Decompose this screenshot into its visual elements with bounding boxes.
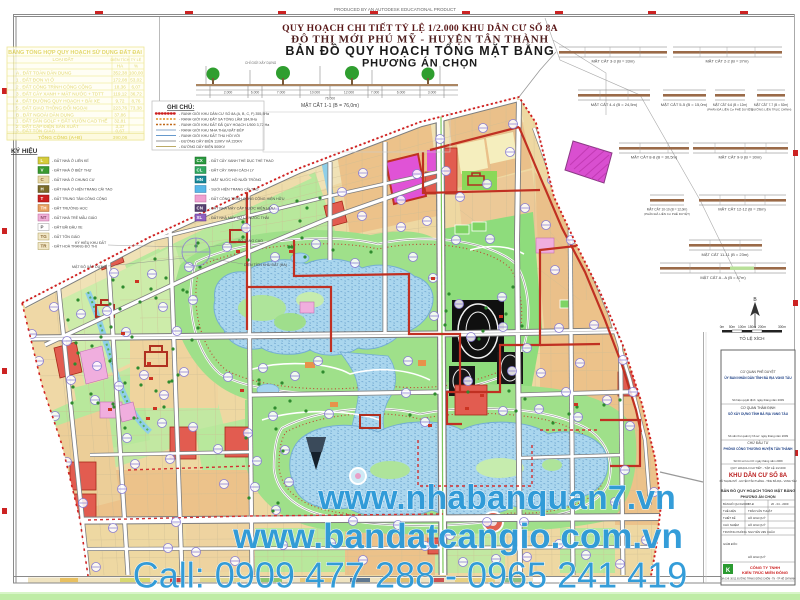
svg-text:K: K	[726, 568, 731, 574]
svg-text:- ĐƯỜNG DÂY ĐIỆN 110KV VÀ 220K: - ĐƯỜNG DÂY ĐIỆN 110KV VÀ 220KV	[179, 139, 243, 144]
svg-text:TỎ LỆ XÍCH: TỎ LỆ XÍCH	[739, 334, 764, 341]
svg-text:CHỨ ĐẦU TƯ: CHỨ ĐẦU TƯ	[747, 441, 768, 445]
svg-text:CƠ QUAN PHÊ DUYỆT: CƠ QUAN PHÊ DUYỆT	[740, 369, 775, 374]
svg-text:TRƯỞNG PHÒNG: TRƯỞNG PHÒNG	[723, 529, 747, 534]
svg-text:172,08: 172,08	[113, 78, 127, 83]
svg-text:A . ĐẤT TOÀN DÂN DỤNG: A . ĐẤT TOÀN DÂN DỤNG	[16, 70, 72, 76]
svg-text:LOẠI ĐẤT: LOẠI ĐẤT	[53, 56, 74, 62]
svg-text:HA: HA	[117, 64, 124, 69]
svg-text:TỲ LỆ: TỲ LỆ	[131, 57, 142, 62]
svg-text:XL: XL	[197, 215, 203, 220]
svg-text:QUY HOẠCH CHI TIẾT TỶ LỆ 1/2.0: QUY HOẠCH CHI TIẾT TỶ LỆ 1/2.000 KHU DÂN…	[282, 21, 558, 34]
svg-text:1 . ĐẤT ĐƠN VỊ Ở: 1 . ĐẤT ĐƠN VỊ Ở	[16, 77, 54, 83]
svg-text:THIẾT KẾ: THIẾT KẾ	[723, 515, 736, 520]
svg-text:- RANH GIỚI KHU DÂN CƯ SỐ 8A (: - RANH GIỚI KHU DÂN CƯ SỐ 8A (A, B, C, F…	[179, 111, 269, 116]
svg-text:50m: 50m	[729, 325, 736, 329]
svg-text:PHÒNG CÔNG THƯƠNG HUYỆN TÂN TH: PHÒNG CÔNG THƯƠNG HUYỆN TÂN THÀNH	[724, 446, 794, 451]
svg-text:100m: 100m	[738, 325, 746, 329]
svg-text:- ĐẤT CÔNG TRÌNH CÔNG CỘNG HIỆ: - ĐẤT CÔNG TRÌNH CÔNG CỘNG HIỆN HỮU	[209, 196, 285, 201]
svg-text:8,76: 8,76	[132, 99, 141, 104]
svg-text:- RANH GIỚI KHU ĐẤT ĐÃ QUY HOẠ: - RANH GIỚI KHU ĐẤT ĐÃ QUY HOẠCH 1/500 3…	[179, 122, 269, 127]
svg-text:6,07: 6,07	[132, 85, 141, 90]
svg-text:Số hiệu quyết định: ngà: Số hiệu quyết định: ngày tháng năm 2009	[732, 398, 784, 402]
svg-text:KIẾN TRÚC MIỀN ĐÔNG: KIẾN TRÚC MIỀN ĐÔNG	[742, 570, 788, 575]
svg-text:MẶT CẮT 6-6 (B = 12m): MẶT CẮT 6-6 (B = 12m)	[713, 102, 747, 107]
svg-text:Số văn thư quản lý hồ sơ:: Số văn thư quản lý hồ sơ: ngày tháng năm…	[728, 434, 788, 438]
svg-text:BẢNG TỔNG HỢP QUY HOẠCH SỬ DỤN: BẢNG TỔNG HỢP QUY HOẠCH SỬ DỤNG ĐẤT ĐAI	[8, 49, 142, 56]
svg-text:CƠ QUAN THẨM ĐỊNH: CƠ QUAN THẨM ĐỊNH	[741, 405, 776, 410]
svg-text:MẶT CẮT A - A (B = 47m): MẶT CẮT A - A (B = 47m)	[700, 275, 746, 280]
svg-text:MẶT CẮT 9-9 (B = 30m): MẶT CẮT 9-9 (B = 30m)	[718, 155, 762, 160]
svg-text:- ĐẤT CÂY XANH THỂ DỤC THỂ THA: - ĐẤT CÂY XANH THỂ DỤC THỂ THAO	[209, 158, 274, 163]
svg-text:- ĐẤT NHÀ MÁY XỬ LÝ NƯỚC THẢI: - ĐẤT NHÀ MÁY XỬ LÝ NƯỚC THẢI	[209, 215, 269, 220]
svg-text:HỒ ANH QUÝ: HỒ ANH QUÝ	[748, 554, 766, 559]
svg-text:18,36: 18,36	[114, 85, 126, 90]
svg-text:PRODUCED BY AN AUTODESK EDUCAT: PRODUCED BY AN AUTODESK EDUCATIONAL PROD…	[334, 7, 456, 12]
svg-text:MẶT CẮT 2-2 (B = 37m): MẶT CẮT 2-2 (B = 37m)	[705, 59, 749, 64]
svg-text:- ĐẤT NHÀ Ở BIỆT THỰ: - ĐẤT NHÀ Ở BIỆT THỰ	[52, 168, 92, 173]
svg-text:THỂ HIỆN: THỂ HIỆN	[723, 508, 736, 513]
svg-text:TG: TG	[41, 234, 48, 239]
svg-text:T: T	[41, 196, 44, 201]
svg-text:100,00: 100,00	[129, 71, 143, 76]
svg-text:TH: TH	[41, 206, 47, 211]
svg-text:6.000: 6.000	[251, 91, 260, 95]
svg-text:6.000: 6.000	[397, 91, 406, 95]
svg-text:- ĐẤT NHÀ Ở CHUNG CƯ: - ĐẤT NHÀ Ở CHUNG CƯ	[52, 177, 95, 182]
svg-text:150m: 150m	[748, 325, 756, 329]
svg-text:MẶT CẮT 8-8 (B = 30,5m): MẶT CẮT 8-8 (B = 30,5m)	[631, 155, 678, 160]
svg-text:NT: NT	[41, 215, 47, 220]
svg-text:10.000: 10.000	[310, 91, 320, 95]
svg-text:(PHẦN ĐÃ LIÊN Cơ PHÊ DUYỆT): (PHẦN ĐÃ LIÊN Cơ PHÊ DUYỆT)	[644, 211, 690, 216]
svg-text:BẢN ĐỒ QH 04/2009: BẢN ĐỒ QH 04/2009	[723, 501, 750, 506]
svg-text:CX: CX	[197, 158, 203, 163]
svg-text:HỒ ANH QUÝ: HỒ ANH QUÝ	[748, 522, 766, 527]
svg-text:7.000: 7.000	[277, 91, 286, 95]
svg-text:3.000: 3.000	[428, 91, 437, 95]
svg-text:- ĐẤT NHÀ Ở LIÊN KẾ: - ĐẤT NHÀ Ở LIÊN KẾ	[52, 158, 89, 163]
svg-text:37,86: 37,86	[114, 113, 126, 118]
svg-text:- ĐẤT BÃI ĐẬU XE: - ĐẤT BÃI ĐẬU XE	[52, 225, 83, 230]
svg-text:BẢN ĐỒ QUY HOẠCH TỔNG MẶT BẰNG: BẢN ĐỒ QUY HOẠCH TỔNG MẶT BẰNG	[285, 43, 554, 58]
svg-text:ĐỊA CHỈ: 30/12, ĐƯỜNG TRANG ĐÔ: ĐỊA CHỈ: 30/12, ĐƯỜNG TRANG ĐÔNG CHÕM - …	[721, 578, 796, 581]
svg-text:BẢN ĐỒ QUY HOẠCH TỔNG MẶT BẰN: BẢN ĐỒ QUY HOẠCH TỔNG MẶT BẰNG	[721, 488, 796, 493]
svg-text:PHƯƠNG ÁN CHỌN: PHƯƠNG ÁN CHỌN	[740, 494, 775, 499]
svg-text:NGUYỄN VăN CHÂU: NGUYỄN VăN CHÂU	[748, 529, 775, 534]
svg-text:- ĐẤT TRUNG TÂM CÔNG CỘNG: - ĐẤT TRUNG TÂM CÔNG CỘNG	[52, 196, 107, 201]
svg-text:MẶT CẮT 10-10 (B = 12,0m): MẶT CẮT 10-10 (B = 12,0m)	[647, 207, 688, 212]
svg-text:MẶT CẮT 12-12 (B = 26m): MẶT CẮT 12-12 (B = 26m)	[718, 207, 766, 212]
svg-text:- ĐƯỜNG DÂY ĐIỆN 500KV: - ĐƯỜNG DÂY ĐIỆN 500KV	[179, 144, 226, 149]
svg-text:- RANH GIỚI KHU NHA THầU ĐẤT Đ: - RANH GIỚI KHU NHA THầU ĐẤT ĐỄP	[179, 128, 245, 133]
svg-text:L: L	[41, 158, 44, 163]
svg-text:B . ĐẤT NGOÀI DÂN DỤNG: B . ĐẤT NGOÀI DÂN DỤNG	[16, 112, 74, 118]
svg-text:KHU DÂN CƯ SỐ 8A: KHU DÂN CƯ SỐ 8A	[729, 472, 788, 479]
svg-text:20 - 04 - 2009: 20 - 04 - 2009	[771, 502, 789, 506]
svg-text:- RANH GIỚI KHU ĐẤT THU HỒI VỚ: - RANH GIỚI KHU ĐẤT THU HỒI VỚI	[179, 133, 240, 138]
svg-text:- ĐẤT NHÀ TRẺ MẪU GIÁO: - ĐẤT NHÀ TRẺ MẪU GIÁO	[52, 215, 97, 220]
svg-text:KÝ HIỆU KHU ĐẤT: KÝ HIỆU KHU ĐẤT	[75, 240, 107, 245]
svg-text:PHƯƠNG ÁN CHỌN: PHƯƠNG ÁN CHỌN	[362, 57, 478, 70]
svg-text:3 . ĐẤT CÂY XANH + MẶT NƯỚC +: 3 . ĐẤT CÂY XANH + MẶT NƯỚC + TDTT	[16, 91, 104, 97]
svg-text:- ĐẤT TÔN GIÁO: - ĐẤT TÔN GIÁO	[52, 234, 80, 239]
svg-text:MẬT ĐỘ XÂY DỰNG: MẬT ĐỘ XÂY DỰNG	[72, 264, 106, 269]
svg-text:MẶT CẮT 7-7 (B = 52m): MẶT CẮT 7-7 (B = 52m)	[754, 102, 788, 107]
svg-text:MẶT CẮT 11-11 (B = 23m): MẶT CẮT 11-11 (B = 23m)	[702, 252, 750, 257]
svg-text:P: P	[41, 225, 44, 230]
svg-text:53,02: 53,02	[130, 78, 142, 83]
svg-text:HỒ ANH QUÝ: HỒ ANH QUÝ	[748, 515, 766, 520]
svg-text:QUY HOẠCH CHI TIẾT - TẬP LỆ 1/: QUY HOẠCH CHI TIẾT - TẬP LỆ 1/2.000	[730, 465, 785, 470]
svg-text:www.bandatcangio.com.vn: www.bandatcangio.com.vn	[232, 517, 683, 556]
svg-text:32,81: 32,81	[114, 119, 126, 124]
svg-text:SỞ XÂY DỰNG TỈNH BÀ RỊA VũNG T: SỞ XÂY DỰNG TỈNH BÀ RỊA VũNG TÀU	[728, 411, 789, 416]
svg-text:MẶT CẮT 5-5 (B = 15,0m): MẶT CẮT 5-5 (B = 15,0m)	[661, 102, 708, 107]
svg-text:SỐ TẦNG CAO: SỐ TẦNG CAO	[238, 238, 263, 243]
svg-text:DIỆN TÍCH KHU ĐẤT (HA): DIỆN TÍCH KHU ĐẤT (HA)	[244, 262, 287, 267]
svg-text:DIỆN TÍCH: DIỆN TÍCH	[111, 57, 130, 62]
svg-text:HN: HN	[197, 177, 204, 182]
svg-text:- ĐẤT CÂY XANH CÁCH LY: - ĐẤT CÂY XANH CÁCH LY	[209, 169, 255, 173]
svg-text:9,72: 9,72	[116, 99, 125, 104]
svg-text:CHỦ NHIỆM: CHỦ NHIỆM	[723, 522, 740, 527]
svg-text:76.000: 76.000	[325, 97, 335, 101]
svg-text:CL: CL	[197, 168, 203, 173]
svg-text:300m: 300m	[778, 325, 786, 329]
svg-text:5 . ĐẤT GIAO THÔNG ĐỐI NGOẠI: 5 . ĐẤT GIAO THÔNG ĐỐI NGOẠI	[16, 105, 88, 111]
svg-text:0,67: 0,67	[116, 129, 125, 134]
svg-text:7.000: 7.000	[371, 91, 380, 95]
svg-text:- ĐẤT NHÀ MÁY CẤP NUỚC HIỆN HỮ: - ĐẤT NHÀ MÁY CẤP NUỚC HIỆN HỮU	[209, 206, 275, 211]
svg-text:(ĐƯỜNG LIÊN TRỤC CHÍNH): (ĐƯỜNG LIÊN TRỤC CHÍNH)	[751, 107, 792, 112]
svg-text:MẶT CẮT 4-4 (B = 24,5m): MẶT CẮT 4-4 (B = 24,5m)	[591, 102, 638, 107]
svg-text:GHI CHÚ:: GHI CHÚ:	[167, 104, 194, 111]
svg-text:223,76: 223,76	[113, 106, 127, 111]
svg-text:Số hồ sơ lưu trữ: ngày: Số hồ sơ lưu trữ: ngày tháng năm 2009	[733, 459, 783, 463]
svg-text:0m: 0m	[720, 325, 725, 329]
svg-text:119,12: 119,12	[113, 92, 127, 97]
svg-text:CHỈ GIỚI XÂY DỰNG: CHỈ GIỚI XÂY DỰNG	[245, 60, 277, 65]
svg-text:- ĐẤT TRƯỜNG HỌC: - ĐẤT TRƯỜNG HỌC	[52, 206, 88, 211]
svg-text:36,72: 36,72	[130, 92, 142, 97]
svg-text:%: %	[134, 64, 138, 69]
svg-text:- ĐẤT NHÀ Ở HIỆN TRẠNG CẢI TẠO: - ĐẤT NHÀ Ở HIỆN TRẠNG CẢI TẠO	[52, 187, 113, 192]
svg-text:3 . ĐẤT TÔN GIÁO: 3 . ĐẤT TÔN GIÁO	[16, 128, 56, 134]
svg-text:MẶT CẮT 1-1 (B = 76,0m): MẶT CẮT 1-1 (B = 76,0m)	[301, 101, 359, 109]
svg-text:(PHẦN ĐÃ LIÊN Cơ PHÊ DUYỆT): (PHẦN ĐÃ LIÊN Cơ PHÊ DUYỆT)	[707, 107, 753, 112]
svg-text:KÝ HIỆU: KÝ HIỆU	[11, 146, 38, 155]
svg-text:2 . ĐẤT CÔNG TRÌNH CÔNG CỘNG: 2 . ĐẤT CÔNG TRÌNH CÔNG CỘNG	[16, 84, 92, 90]
svg-text:CN: CN	[197, 206, 204, 211]
svg-text:- RANH GIỚI KHU ĐẤT SA TỔNG LÂ: - RANH GIỚI KHU ĐẤT SA TỔNG LÂM 184,9Ha	[179, 117, 257, 122]
svg-text:TR: TR	[41, 244, 48, 249]
svg-text:GIÁM ĐỐC:: GIÁM ĐỐC:	[723, 541, 738, 546]
svg-text:ỦY BAN NHÂN DÂN TỈNH BÀ RỊA Vũ: ỦY BAN NHÂN DÂN TỈNH BÀ RỊA VũNG TÀU	[724, 375, 792, 380]
svg-text:V: V	[41, 168, 44, 173]
svg-text:12.000: 12.000	[344, 91, 354, 95]
svg-text:200m: 200m	[758, 325, 766, 329]
svg-text:TRẦN VÂN THUẬT: TRẦN VÂN THUẬT	[748, 508, 772, 513]
svg-text:17-Đ: 17-Đ	[748, 502, 754, 506]
svg-text:Call: 0909 477 288 - 0965 241: Call: 0909 477 288 - 0965 241 419	[133, 555, 687, 596]
svg-text:4 . ĐẤT ĐƯỜNG QUY HOẠCH + BÃI: 4 . ĐẤT ĐƯỜNG QUY HOẠCH + BÃI XE	[16, 98, 100, 104]
svg-text:2.000: 2.000	[224, 91, 233, 95]
svg-text:H: H	[41, 187, 44, 192]
svg-text:1 . ĐẤT SÂN GOLF + ĐẤT VƯỜN CA: 1 . ĐẤT SÂN GOLF + ĐẤT VƯỜN CAO THẾ	[16, 118, 107, 124]
svg-text:- MẶT NƯỚC HỒ NUÔI TRỒNG: - MẶT NƯỚC HỒ NUÔI TRỒNG	[209, 177, 262, 182]
svg-text:MẶT CẮT 3-3 (B = 33m): MẶT CẮT 3-3 (B = 33m)	[591, 59, 635, 64]
svg-text:www.nhabanquan7.vn: www.nhabanquan7.vn	[317, 479, 676, 517]
svg-text:352,38: 352,38	[113, 71, 127, 76]
svg-text:73,38: 73,38	[130, 106, 142, 111]
svg-text:390,06: 390,06	[113, 135, 128, 141]
svg-text:- SUỐI HIỆN TRẠNG CẢI TẠO: - SUỐI HIỆN TRẠNG CẢI TẠO	[209, 187, 259, 192]
